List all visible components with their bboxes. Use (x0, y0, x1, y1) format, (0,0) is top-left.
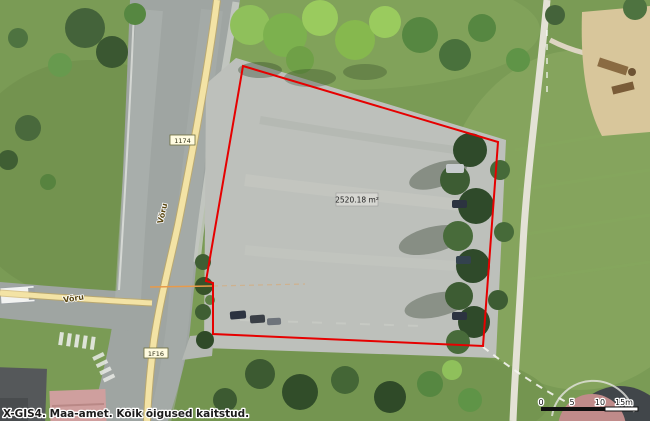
road-marker-label: 1F16 (148, 350, 164, 358)
road-marker-badge: 1174 (170, 135, 195, 145)
orthophoto-layer (0, 0, 650, 421)
scale-tick-15m: 15m (615, 398, 633, 407)
copyright-text: X-GIS4. Maa-amet. Kõik õigused kaitstud. (3, 408, 249, 420)
map-viewport[interactable]: 1174 1F16 Võru Võru 2520.18 m² 0 5 10 15… (0, 0, 650, 421)
area-value: 2520.18 m² (335, 196, 379, 205)
scale-tick-0: 0 (538, 398, 543, 407)
scale-tick-10: 10 (595, 398, 605, 407)
area-measurement-label: 2520.18 m² (335, 193, 379, 206)
scale-tick-5: 5 (569, 398, 574, 407)
map-canvas[interactable]: 1174 1F16 Võru Võru 2520.18 m² 0 5 10 15… (0, 0, 650, 421)
road-marker-badge: 1F16 (144, 348, 168, 358)
road-marker-label: 1174 (174, 137, 191, 145)
